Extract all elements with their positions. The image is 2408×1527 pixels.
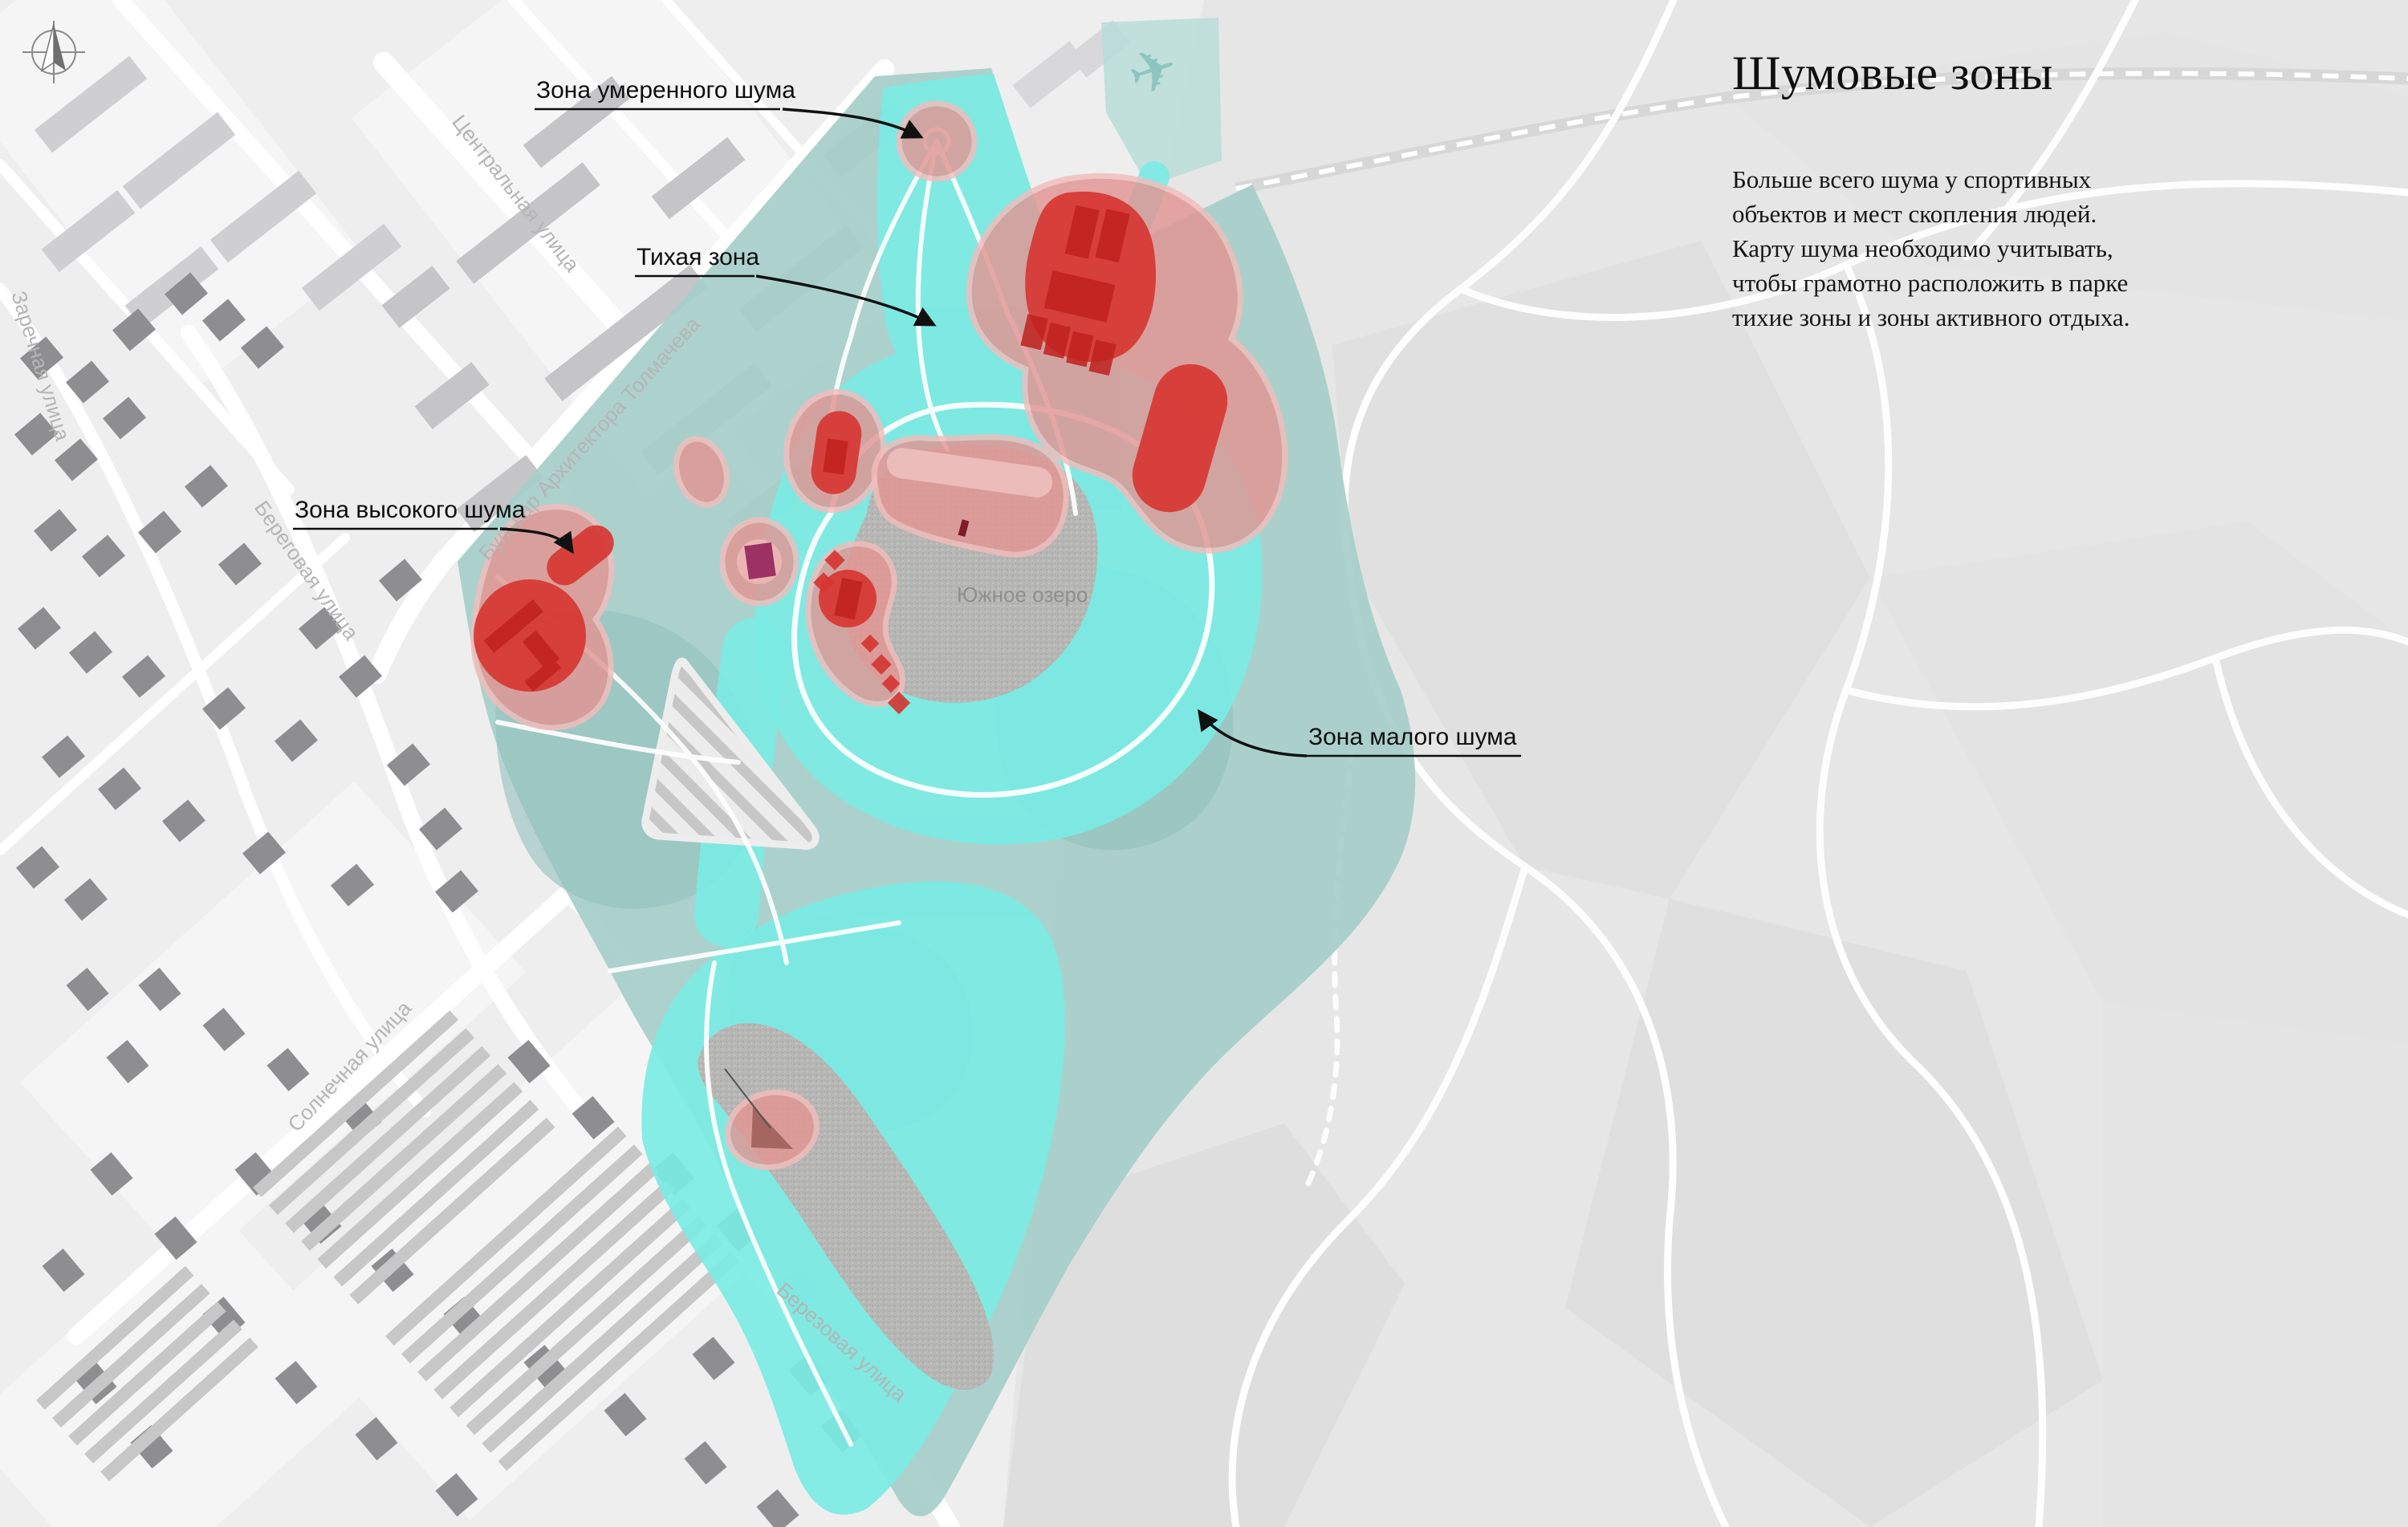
label-high-noise: Зона высокого шума — [295, 497, 526, 523]
description-line: Карту шума необходимо учитывать, — [1732, 231, 2342, 266]
noise-map-infographic: ✈ Центральная улица Бульвар Архитектора … — [0, 0, 2408, 1527]
page-title: Шумовые зоны — [1732, 47, 2342, 99]
label-quiet-zone: Тихая зона — [637, 244, 759, 270]
description-line: объектов и мест скопления людей. — [1732, 197, 2342, 231]
description-line: Больше всего шума у спортивных — [1732, 162, 2342, 197]
info-panel: Шумовые зоны Больше всего шума у спортив… — [1732, 47, 2342, 335]
description: Больше всего шума у спортивных объектов … — [1732, 162, 2342, 335]
label-moderate-noise: Зона умеренного шума — [536, 77, 795, 104]
description-line: тихие зоны и зоны активного отдыха. — [1732, 300, 2342, 335]
moderate-noise-entrance — [899, 104, 974, 179]
label-low-noise: Зона малого шума — [1308, 724, 1517, 750]
pavilion-building — [744, 542, 776, 579]
description-line: чтобы грамотно расположить в парке — [1732, 266, 2342, 300]
lake-label: Южное озеро — [957, 583, 1088, 607]
